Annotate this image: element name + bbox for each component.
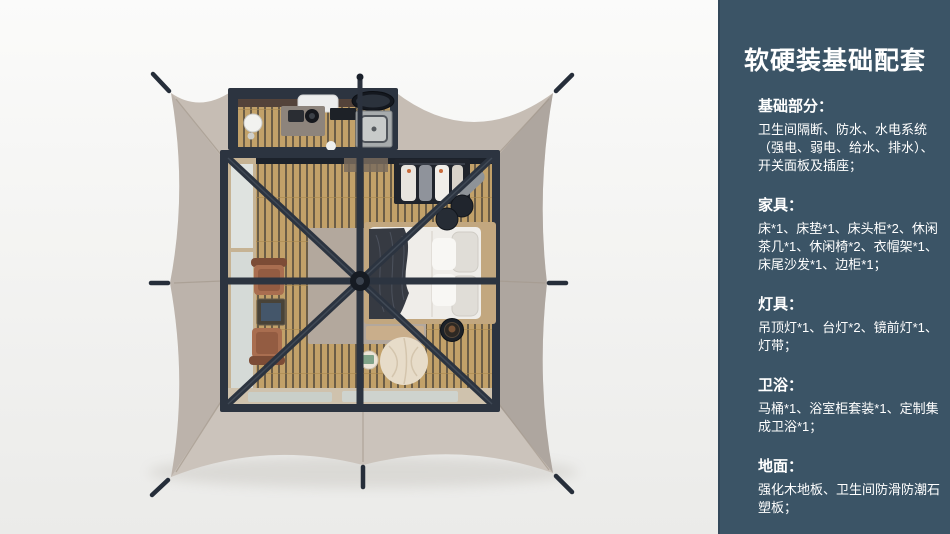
center-pole <box>358 76 363 152</box>
section-body: 强化木地板、卫生间防滑防潮石 塑板； <box>758 481 940 517</box>
window-panel-2 <box>231 252 253 398</box>
center-hub-cap <box>356 277 364 285</box>
section-basics: 基础部分： 卫生间隔断、防水、水电系统 （强电、弱电、给水、排水）、 开关面板及… <box>758 98 940 175</box>
section-body: 床*1、床垫*1、床头柜*2、休闲 茶几*1、休闲椅*2、衣帽架*1、 床尾沙发… <box>758 220 940 274</box>
garment-accent <box>439 169 443 173</box>
doorway-mat <box>344 158 388 172</box>
section-bathroom: 卫浴： 马桶*1、浴室柜套装*1、定制集 成卫浴*1； <box>758 377 940 436</box>
section-flooring: 地面： 强化木地板、卫生间防滑防潮石 塑板； <box>758 458 940 517</box>
section-furniture: 家具： 床*1、床垫*1、床头柜*2、休闲 茶几*1、休闲椅*2、衣帽架*1、 … <box>758 197 940 274</box>
section-body: 卫生间隔断、防水、水电系统 （强电、弱电、给水、排水）、 开关面板及插座； <box>758 121 940 175</box>
sidebar-title: 软硬装基础配套 <box>720 0 950 76</box>
bean-bag-pouf <box>380 337 428 385</box>
floor-fixture <box>326 141 336 151</box>
section-body: 马桶*1、浴室柜套装*1、定制集 成卫浴*1； <box>758 400 940 436</box>
floorplan-scene <box>0 0 718 534</box>
floorplan-rendering <box>0 0 718 534</box>
book <box>363 355 374 364</box>
toilet <box>244 114 262 132</box>
sink-drain <box>372 127 377 132</box>
toilet-base <box>248 133 255 140</box>
section-lighting: 灯具： 吊顶灯*1、台灯*2、镜前灯*1、 灯带； <box>758 296 940 355</box>
section-heading: 地面： <box>758 458 940 475</box>
vanity-drain <box>309 113 315 119</box>
center-pole-cap <box>357 74 364 81</box>
chair-cushion <box>256 332 278 354</box>
tea-table-glass <box>261 303 281 321</box>
section-heading: 家具： <box>758 197 940 214</box>
vanity-accessory <box>288 110 304 122</box>
entrance-mat <box>248 392 332 402</box>
hanging-garment <box>419 165 432 201</box>
pillow-front <box>432 238 456 270</box>
spec-sidebar: 软硬装基础配套 基础部分： 卫生间隔断、防水、水电系统 （强电、弱电、给水、排水… <box>718 0 950 534</box>
section-body: 吊顶灯*1、台灯*2、镜前灯*1、 灯带； <box>758 319 940 355</box>
tray-item <box>449 326 456 333</box>
slide: 软硬装基础配套 基础部分： 卫生间隔断、防水、水电系统 （强电、弱电、给水、排水… <box>0 0 950 534</box>
section-heading: 基础部分： <box>758 98 940 115</box>
section-heading: 卫浴： <box>758 377 940 394</box>
bathroom-counter <box>330 108 356 120</box>
section-heading: 灯具： <box>758 296 940 313</box>
bed <box>364 222 496 324</box>
garment-accent <box>407 169 411 173</box>
lounge-chair-1 <box>251 258 287 295</box>
